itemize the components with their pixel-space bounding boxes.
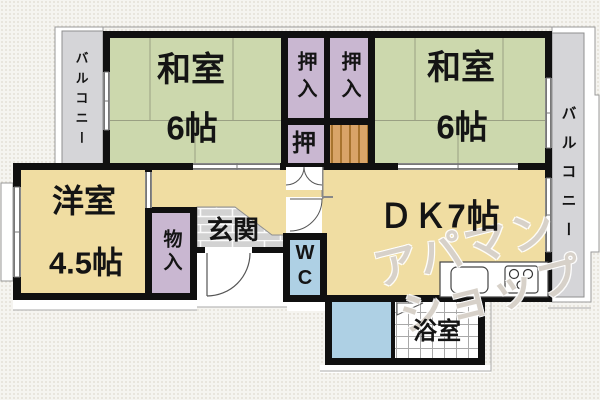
south-band bbox=[13, 300, 197, 310]
bathroom-label: 浴室 bbox=[413, 320, 461, 344]
floorplan: アパマン ショップ 和室 6帖 和室 6帖 洋室 4.5帖 ＤＫ7帖 玄関 WC… bbox=[0, 0, 600, 400]
wall-genkan-left bbox=[190, 207, 197, 300]
washitsu-right-size: 6帖 bbox=[436, 111, 487, 144]
balcony-left-label: バルコニー bbox=[75, 51, 88, 151]
wall-oshiire-left bbox=[281, 31, 288, 170]
wall-oshiire-right bbox=[368, 31, 375, 170]
wall-oshiire-bottom bbox=[281, 118, 375, 125]
wall-south bbox=[13, 293, 197, 300]
monoire-label: 物入 bbox=[162, 229, 181, 275]
oshiire-right-label: 押入 bbox=[339, 51, 359, 105]
window-sill-left bbox=[1, 183, 13, 281]
wall-bath-left bbox=[325, 302, 332, 365]
genkan-label: 玄関 bbox=[207, 217, 259, 243]
wc-label: WC bbox=[295, 242, 315, 292]
oshiire-left-label: 押入 bbox=[295, 51, 315, 105]
wall-wc-left bbox=[283, 233, 290, 302]
balcony-right-label: バルコニー bbox=[561, 106, 576, 251]
washitsu-right-label: 和室 bbox=[427, 51, 495, 85]
bath-band bbox=[320, 365, 491, 373]
wall-wc-right bbox=[320, 238, 327, 302]
west-band bbox=[287, 302, 325, 311]
youshitsu-size: 4.5帖 bbox=[49, 248, 123, 279]
entry-porch bbox=[197, 253, 287, 307]
bathtub-area bbox=[331, 302, 391, 359]
shelf-closet bbox=[329, 123, 370, 165]
dk-label: ＤＫ7帖 bbox=[379, 200, 500, 233]
wall-bath-bottom bbox=[325, 358, 485, 365]
oshi-label: 押 bbox=[292, 132, 316, 156]
wall-oshiire-mid bbox=[324, 31, 330, 170]
wall-monoire-top bbox=[145, 207, 197, 213]
youshitsu-label: 洋室 bbox=[52, 185, 116, 217]
entry-door-opening bbox=[205, 247, 252, 253]
washitsu-left-label: 和室 bbox=[157, 53, 225, 87]
washitsu-left-size: 6帖 bbox=[166, 112, 217, 145]
